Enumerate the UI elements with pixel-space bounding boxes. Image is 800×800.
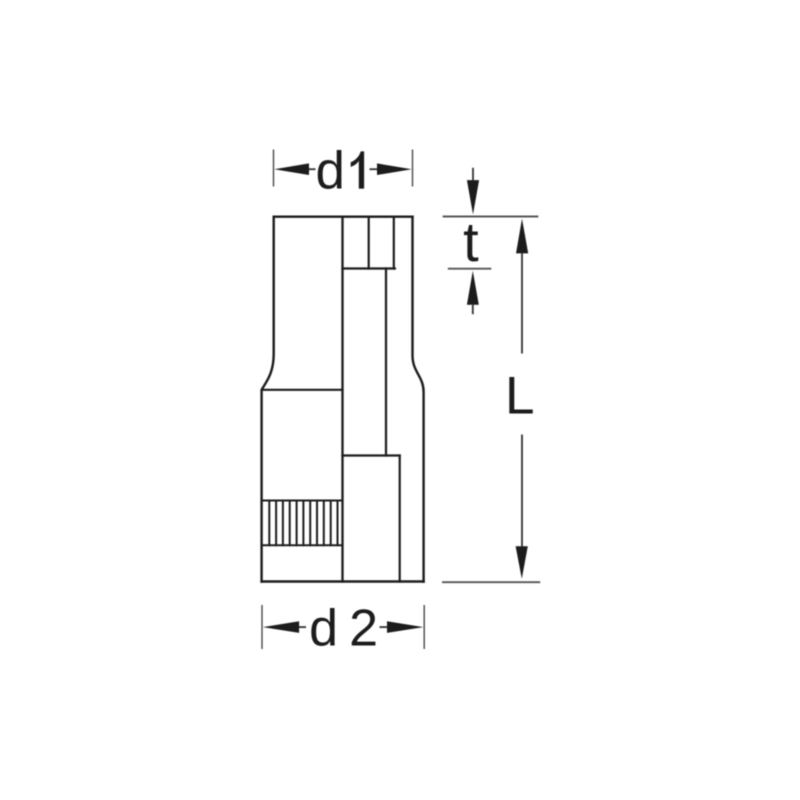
svg-text:t: t <box>463 210 479 273</box>
svg-text:L: L <box>505 367 534 426</box>
svg-text:d: d <box>315 142 344 201</box>
svg-text:2: 2 <box>349 600 378 658</box>
svg-text:d: d <box>309 600 338 658</box>
